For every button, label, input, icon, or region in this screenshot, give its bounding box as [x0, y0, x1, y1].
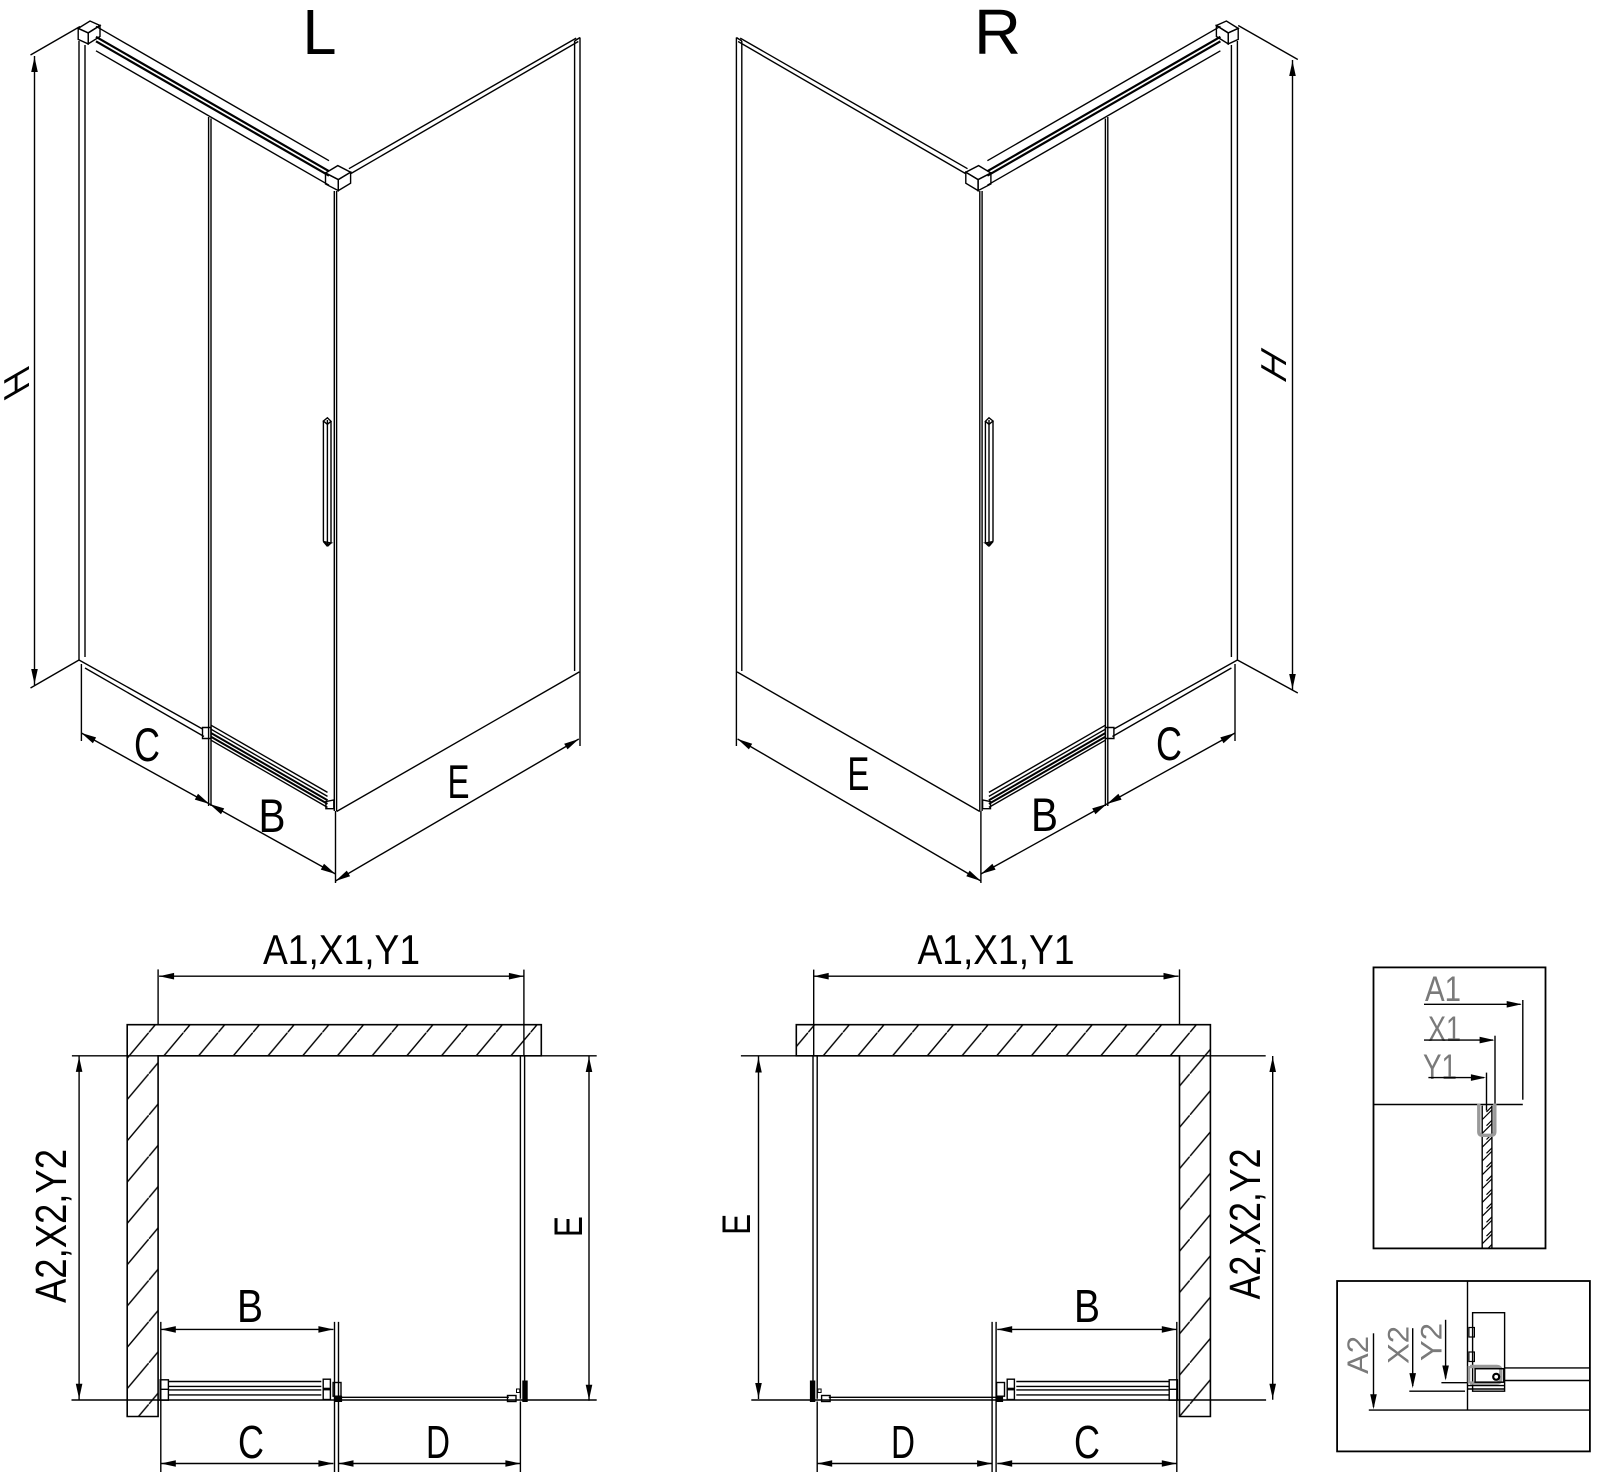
svg-text:E: E: [547, 1216, 591, 1237]
svg-text:A2: A2: [1342, 1336, 1375, 1374]
svg-text:C: C: [238, 1416, 264, 1468]
svg-text:Y2: Y2: [1415, 1323, 1448, 1361]
svg-text:E: E: [448, 755, 470, 808]
svg-text:A1: A1: [1425, 970, 1461, 1009]
svg-text:A2,X2,Y2: A2,X2,Y2: [1221, 1149, 1270, 1300]
svg-text:A1,X1,Y1: A1,X1,Y1: [263, 926, 420, 973]
svg-text:C: C: [134, 718, 160, 771]
svg-text:B: B: [1031, 788, 1058, 841]
svg-text:A1,X1,Y1: A1,X1,Y1: [918, 926, 1075, 973]
svg-text:C: C: [1156, 717, 1182, 770]
svg-text:B: B: [1074, 1280, 1100, 1332]
svg-text:E: E: [715, 1214, 759, 1235]
svg-text:R: R: [974, 0, 1021, 68]
svg-text:D: D: [891, 1416, 915, 1468]
svg-text:A2,X2,Y2: A2,X2,Y2: [27, 1149, 76, 1303]
svg-text:X1: X1: [1428, 1010, 1461, 1049]
svg-text:E: E: [847, 747, 869, 800]
svg-text:X2: X2: [1383, 1326, 1416, 1364]
svg-text:L: L: [303, 0, 337, 68]
svg-text:Y1: Y1: [1423, 1048, 1457, 1087]
svg-text:D: D: [426, 1416, 450, 1468]
svg-text:B: B: [237, 1280, 263, 1332]
svg-text:C: C: [1074, 1416, 1100, 1468]
svg-text:B: B: [259, 789, 286, 842]
